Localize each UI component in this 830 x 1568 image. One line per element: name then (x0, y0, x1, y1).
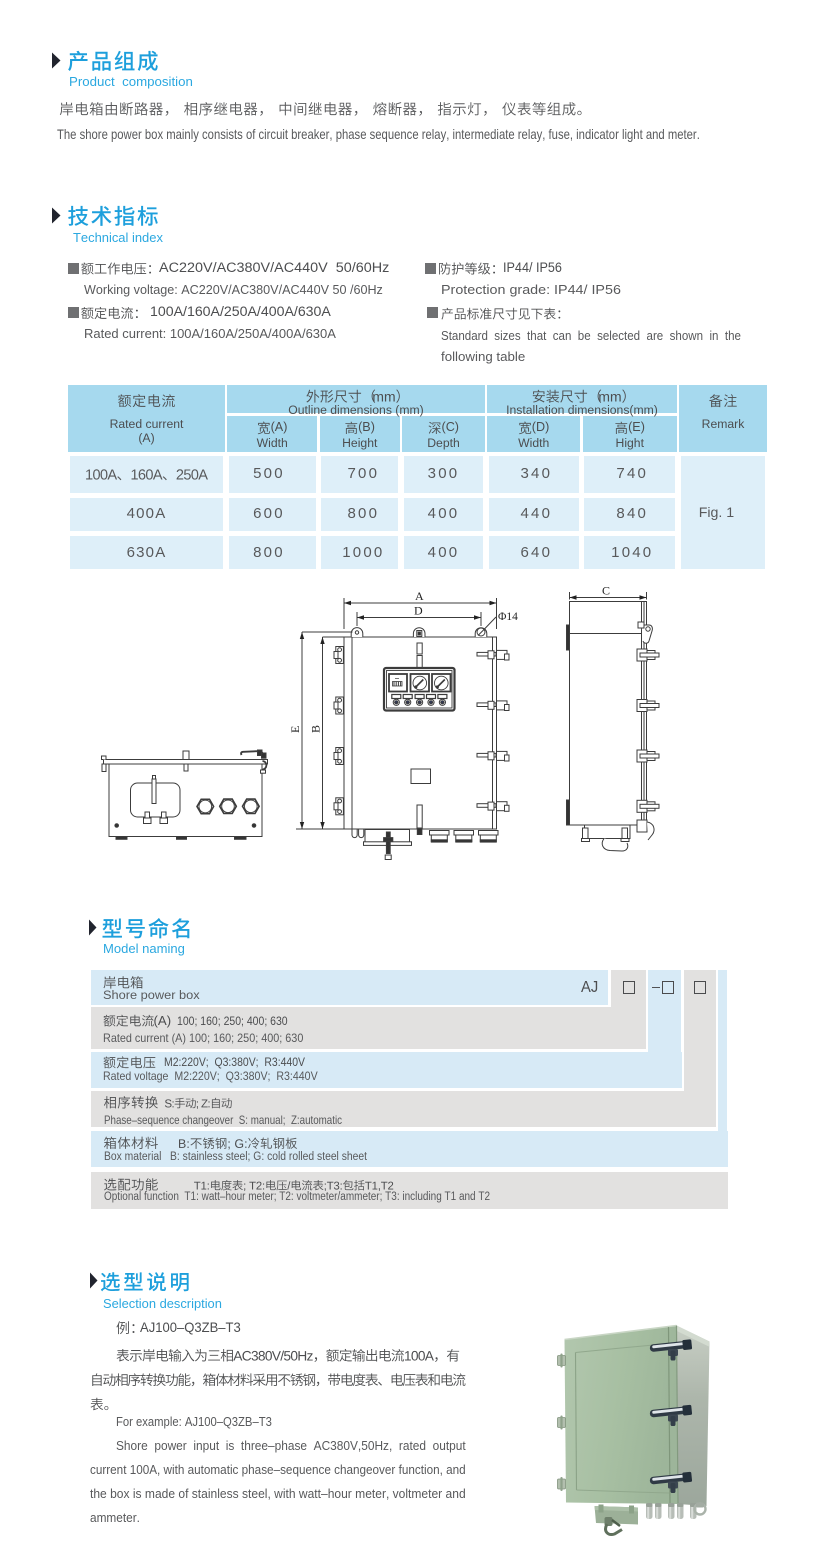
svg-text:B: B (309, 725, 323, 733)
svg-text:Φ14: Φ14 (498, 611, 518, 623)
svg-text:A: A (415, 589, 424, 603)
svg-text:C: C (602, 584, 610, 598)
svg-text:D: D (414, 604, 423, 618)
svg-text:E: E (288, 726, 302, 733)
